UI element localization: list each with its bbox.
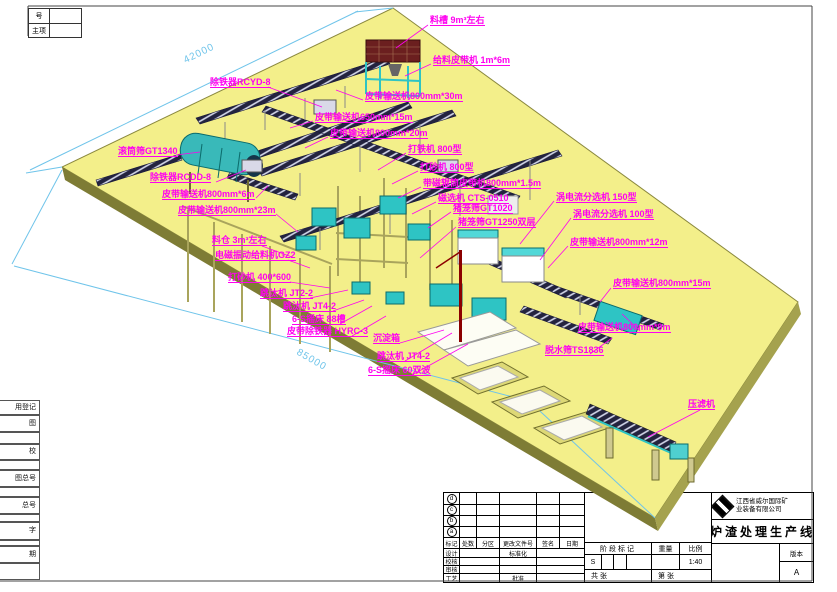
border-strip-cell: 校: [0, 444, 40, 460]
corner-box-row1: 号: [29, 9, 50, 23]
border-strip-cell: 用登记: [0, 400, 40, 415]
border-strip-cell: [0, 460, 40, 470]
drawing-sheet: d c b a 标记 处数 分区 更改文件号 签名 日期 设计 标准化 校核 审…: [0, 0, 837, 592]
border-strip-cell: [0, 432, 40, 444]
border-strip-cell: 图总号: [0, 470, 40, 487]
border-strip-cell: 总号: [0, 497, 40, 514]
border-strip-cell: 字: [0, 522, 40, 540]
isometric-scene: [0, 0, 837, 592]
platform: [62, 8, 801, 531]
border-strip-cell: [0, 563, 40, 580]
border-strip-cell: 图: [0, 415, 40, 432]
border-strip-cell: [0, 487, 40, 497]
corner-box-row2: 主项: [29, 24, 50, 37]
border-strip-cell: 期: [0, 546, 40, 563]
border-strip-cell: [0, 514, 40, 522]
corner-box: 号 主项: [28, 8, 82, 38]
